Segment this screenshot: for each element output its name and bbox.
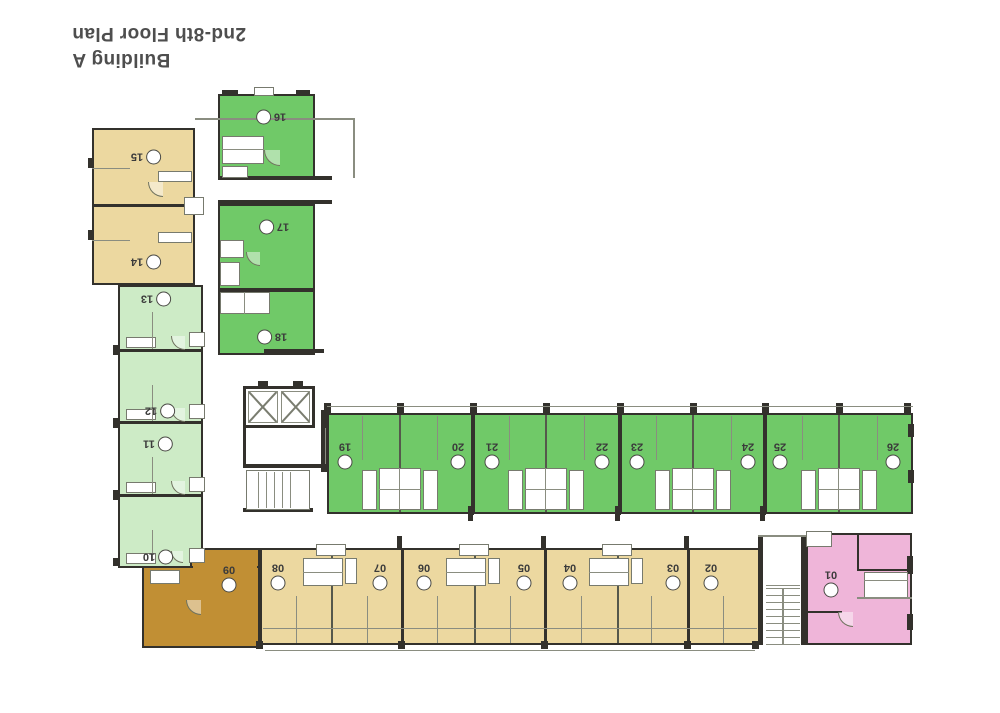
column-post [113, 345, 118, 355]
elevator-cell-icon [281, 391, 311, 423]
unit-number: 10 [143, 551, 155, 563]
thin-line [584, 416, 585, 460]
unit-number: 19 [339, 441, 351, 453]
fixture [362, 470, 377, 510]
column-post [684, 641, 691, 649]
fixture [864, 572, 908, 598]
column-post [468, 513, 473, 521]
fixture [631, 558, 643, 584]
thin-line [758, 535, 806, 537]
thin-line [672, 489, 714, 490]
thin-line [802, 416, 803, 460]
unit-label-03: 03 [666, 562, 681, 591]
unit-label-18: 18 [257, 330, 287, 345]
column-post [908, 424, 914, 437]
unit-number: 23 [631, 441, 643, 453]
fixture [220, 240, 244, 258]
unit-number: 11 [143, 438, 155, 450]
unit-type-badge [595, 455, 610, 470]
unit-type-badge [271, 576, 286, 591]
unit-number: 07 [374, 562, 386, 574]
wall-segment [92, 204, 195, 207]
thin-line [651, 596, 652, 643]
unit-label-19: 19 [338, 441, 353, 470]
unit-type-badge [156, 292, 171, 307]
unit-number: 15 [131, 151, 143, 163]
unit-label-21: 21 [485, 441, 500, 470]
unit-type-badge [146, 150, 161, 165]
wall-segment [758, 535, 763, 645]
fixture [602, 544, 632, 556]
column-post [398, 641, 405, 649]
fixture [158, 232, 192, 243]
thin-line [818, 489, 860, 490]
unit-label-25: 25 [773, 441, 788, 470]
thin-line [379, 489, 421, 490]
unit-number: 17 [277, 221, 289, 233]
column-post [907, 614, 913, 630]
thin-line [589, 572, 629, 573]
unit-type-badge [773, 455, 788, 470]
unit-type-badge [146, 255, 161, 270]
thin-line [545, 468, 546, 510]
unit-label-24: 24 [741, 441, 756, 470]
unit-number: 25 [774, 441, 786, 453]
unit-type-badge [259, 220, 274, 235]
unit-type-badge [517, 576, 532, 591]
fixture [150, 570, 180, 584]
wall-segment [218, 200, 332, 204]
unit-type-badge [630, 455, 645, 470]
wall-segment [857, 569, 912, 571]
wall-segment [243, 464, 327, 468]
thin-line [525, 489, 567, 490]
unit-number: 24 [742, 441, 754, 453]
unit-label-15: 15 [131, 150, 161, 165]
thin-line [437, 416, 438, 460]
fixture [254, 87, 274, 96]
unit-number: 20 [452, 441, 464, 453]
unit-number: 26 [887, 441, 899, 453]
unit-type-badge [666, 576, 681, 591]
column-post [760, 513, 765, 521]
wall-segment [806, 611, 842, 613]
column-post [836, 403, 843, 414]
unit-number: 18 [275, 331, 287, 343]
unit-number: 01 [825, 569, 837, 581]
column-post [296, 90, 310, 95]
column-post [617, 403, 624, 414]
unit-type-badge [257, 330, 272, 345]
west-wing-block [118, 285, 203, 568]
fixture [806, 531, 832, 547]
thin-line [399, 468, 400, 510]
unit-number: 03 [667, 562, 679, 574]
unit-number: 12 [145, 405, 157, 417]
column-post [752, 641, 759, 649]
unit-label-06: 06 [417, 562, 432, 591]
fixture [184, 197, 204, 215]
wall-segment [801, 535, 806, 645]
stair-treads [258, 472, 294, 508]
unit-type-badge [485, 455, 500, 470]
elevator-core [243, 386, 315, 428]
unit-number: 05 [518, 562, 530, 574]
column-post [222, 90, 238, 95]
column-post [541, 536, 546, 548]
fixture [220, 262, 240, 286]
unit-number: 08 [272, 562, 284, 574]
unit-label-09: 09 [222, 564, 237, 593]
thin-line [244, 292, 245, 314]
unit-label-13: 13 [141, 292, 171, 307]
unit-label-12: 12 [145, 404, 175, 419]
unit-number: 21 [486, 441, 498, 453]
unit-label-07: 07 [373, 562, 388, 591]
column-post [113, 418, 118, 428]
unit-type-badge [158, 550, 173, 565]
fixture [222, 166, 248, 178]
thin-line [367, 596, 368, 643]
fixture [220, 292, 270, 314]
unit-type-badge [158, 437, 173, 452]
unit-label-02: 02 [704, 562, 719, 591]
fixture [655, 470, 670, 510]
thin-line [509, 416, 510, 460]
thin-line [692, 468, 693, 510]
fixture [459, 544, 489, 556]
unit-type-badge [417, 576, 432, 591]
thin-line [265, 650, 755, 651]
column-post [543, 403, 550, 414]
unit-type-badge [338, 455, 353, 470]
thin-line [327, 406, 913, 407]
thin-line [446, 572, 486, 573]
unit-type-badge [373, 576, 388, 591]
thin-line [303, 572, 343, 573]
thin-line [510, 596, 511, 643]
unit-label-23: 23 [630, 441, 645, 470]
unit-type-badge [222, 578, 237, 593]
wall-segment [763, 415, 767, 512]
unit-label-04: 04 [563, 562, 578, 591]
thin-line [838, 468, 839, 510]
unit-type-badge [160, 404, 175, 419]
unit-label-16: 16 [256, 110, 286, 125]
thin-line [877, 416, 878, 460]
thin-line [766, 585, 800, 586]
wall-segment [118, 494, 203, 497]
thin-line [92, 168, 130, 169]
fixture [488, 558, 500, 584]
unit-label-26: 26 [886, 441, 901, 470]
thin-line [723, 596, 724, 643]
fixture [716, 470, 731, 510]
column-post [684, 536, 689, 548]
column-post [113, 558, 118, 566]
wall-segment [264, 349, 324, 353]
unit-type-badge [824, 583, 839, 598]
thin-line [222, 149, 264, 150]
fixture [508, 470, 523, 510]
unit-label-20: 20 [451, 441, 466, 470]
fixture [345, 558, 357, 584]
fixture [222, 136, 264, 164]
column-post [324, 403, 331, 414]
unit-number: 06 [418, 562, 430, 574]
column-post [397, 536, 402, 548]
column-post [470, 403, 477, 414]
fixture [189, 404, 205, 419]
wall-segment [857, 535, 859, 571]
unit-type-badge [563, 576, 578, 591]
thin-line [782, 588, 784, 645]
fixture [423, 470, 438, 510]
thin-line [296, 596, 297, 643]
thin-line [581, 596, 582, 643]
column-post [88, 230, 93, 240]
column-post [908, 470, 914, 483]
thin-line [353, 118, 355, 178]
thin-line [362, 416, 363, 460]
fixture [862, 470, 877, 510]
thin-line [152, 457, 153, 494]
fixture [158, 171, 192, 182]
unit-label-05: 05 [517, 562, 532, 591]
column-post [88, 158, 93, 168]
column-post [690, 403, 697, 414]
thin-line [92, 240, 130, 241]
wall-segment [618, 415, 622, 512]
unit-type-badge [704, 576, 719, 591]
unit-number: 13 [141, 293, 153, 305]
column-post [256, 641, 263, 649]
unit-type-badge [451, 455, 466, 470]
unit-label-11: 11 [143, 437, 173, 452]
wall-segment [118, 349, 203, 352]
unit-number: 14 [131, 256, 143, 268]
thin-line [152, 312, 153, 349]
thin-line [864, 580, 908, 581]
unit-label-01: 01 [824, 569, 839, 598]
unit-label-14: 14 [131, 255, 161, 270]
unit-label-22: 22 [595, 441, 610, 470]
unit-label-10: 10 [143, 550, 173, 565]
elevator-cell-icon [248, 391, 278, 423]
thin-line [325, 428, 326, 464]
floor-plan: 15 14 16 17 18 13 12 11 10 19 20 21 22 2… [0, 0, 1000, 713]
fixture [189, 477, 205, 492]
unit-number: 22 [596, 441, 608, 453]
thin-line [437, 596, 438, 643]
unit-number: 16 [274, 111, 286, 123]
fixture [316, 544, 346, 556]
fixture [189, 332, 205, 347]
column-post [904, 403, 911, 414]
column-post [397, 403, 404, 414]
wall-segment [243, 428, 246, 468]
column-post [762, 403, 769, 414]
unit-number: 09 [223, 564, 235, 576]
thin-line [731, 416, 732, 460]
column-post [113, 490, 118, 500]
wall-segment [118, 421, 203, 424]
thin-line [656, 416, 657, 460]
unit-type-badge [886, 455, 901, 470]
unit-label-17: 17 [259, 220, 289, 235]
column-post [615, 513, 620, 521]
unit-label-08: 08 [271, 562, 286, 591]
unit-number: 02 [705, 562, 717, 574]
wall-segment [471, 415, 475, 512]
unit-number: 04 [564, 562, 576, 574]
unit-type-badge [256, 110, 271, 125]
column-post [541, 641, 548, 649]
fixture [569, 470, 584, 510]
unit-type-badge [741, 455, 756, 470]
fixture [189, 548, 205, 563]
thin-line [857, 597, 912, 599]
fixture [801, 470, 816, 510]
